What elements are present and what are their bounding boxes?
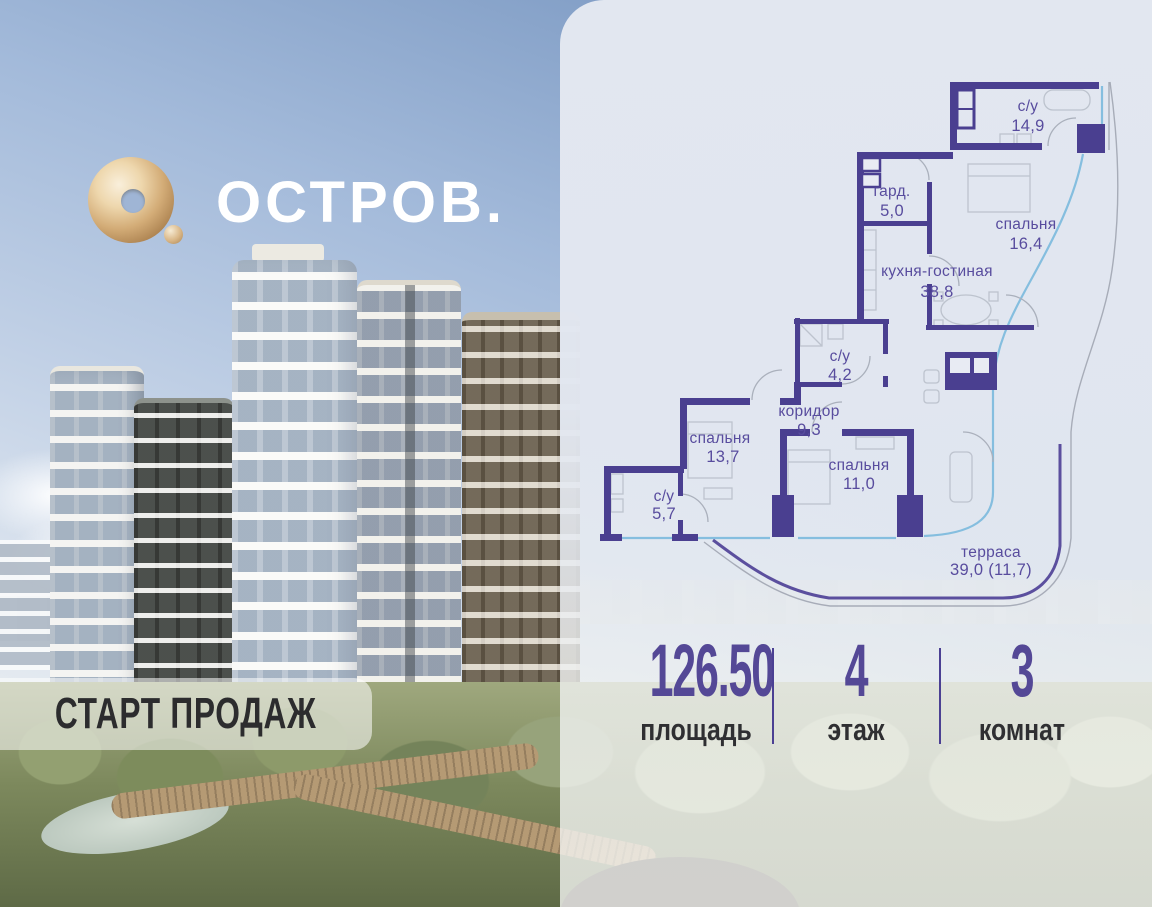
room-area-bedroom2: 13,7	[706, 448, 739, 466]
promo-card: ОСТРОВ. СТАРТ ПРОДАЖ	[0, 0, 1152, 907]
room-area-bath1: 14,9	[1011, 117, 1044, 135]
distant-building	[0, 540, 56, 670]
room-area-terrace: 39,0 (11,7)	[950, 561, 1032, 579]
stat-rooms: 3 комнат	[944, 638, 1100, 748]
room-name-kitchen: кухня-гостиная	[881, 263, 993, 280]
room-labels: с/у 14,9 гард. 5,0 спальня 16,4 кухня-го…	[652, 98, 1056, 579]
room-area-bedroom1: 16,4	[1009, 235, 1042, 253]
room-area-bath3: 5,7	[652, 505, 676, 523]
stat-rooms-label: комнат	[960, 712, 1085, 748]
stat-area-label: площадь	[632, 712, 760, 748]
room-area-kitchen: 38,8	[920, 283, 953, 301]
room-name-bath2: с/у	[830, 348, 851, 365]
room-name-bath3: с/у	[654, 488, 675, 505]
room-name-bedroom2: спальня	[690, 430, 751, 447]
room-name-wardrobe: гард.	[873, 183, 910, 200]
stat-floor-label: этаж	[792, 712, 920, 748]
floor-plan: с/у 14,9 гард. 5,0 спальня 16,4 кухня-го…	[576, 40, 1152, 620]
room-name-corridor: коридор	[778, 403, 839, 420]
stat-floor: 4 этаж	[776, 638, 936, 748]
stat-area-value: 126.50	[650, 638, 743, 704]
room-name-terrace: терраса	[961, 544, 1021, 561]
room-area-wardrobe: 5,0	[880, 202, 904, 220]
room-area-bath2: 4,2	[828, 366, 852, 384]
stat-divider	[772, 648, 774, 744]
badge-label: СТАРТ ПРОДАЖ	[55, 689, 317, 739]
room-area-bedroom3: 11,0	[843, 475, 875, 493]
brand-logo: ОСТРОВ.	[88, 155, 506, 249]
sales-start-badge: СТАРТ ПРОДАЖ	[0, 678, 372, 750]
torus-dot	[164, 225, 183, 244]
stat-area: 126.50 площадь	[616, 638, 776, 748]
room-name-bedroom1: спальня	[996, 216, 1057, 233]
stat-floor-value: 4	[810, 638, 903, 704]
room-area-corridor: 9,3	[797, 421, 821, 439]
room-name-bedroom3: спальня	[829, 457, 890, 474]
stat-rooms-value: 3	[977, 638, 1067, 704]
brand-name: ОСТРОВ.	[216, 169, 506, 236]
torus-hole	[121, 189, 145, 213]
room-name-bath1: с/у	[1018, 98, 1039, 115]
torus-logo-icon	[88, 155, 188, 249]
stat-divider	[939, 648, 941, 744]
